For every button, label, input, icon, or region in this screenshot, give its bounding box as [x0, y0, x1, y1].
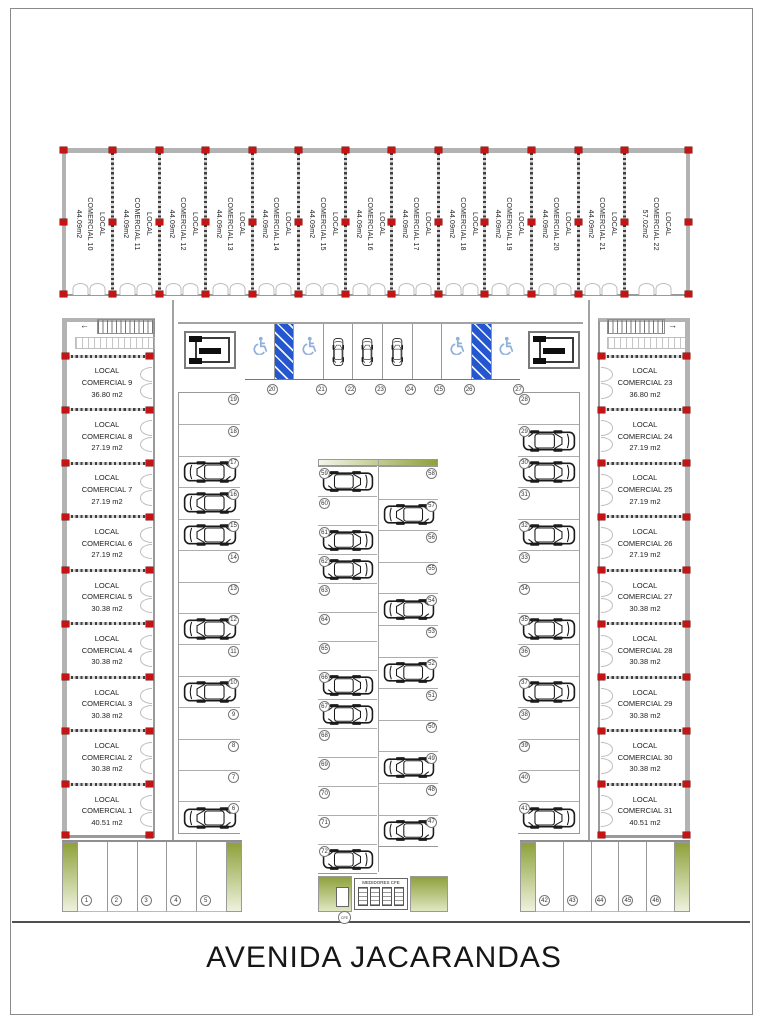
door-arc [140, 651, 152, 667]
stall-number: 69 [319, 759, 330, 770]
local-label: LOCALCOMERCIAL 2257.02m2 [637, 159, 673, 289]
local-area: 27.19 m2 [66, 496, 148, 508]
local-cell: LOCALCOMERCIAL 2930.38 m2 [604, 677, 686, 731]
door-swing [601, 795, 613, 827]
partition-wall [66, 462, 150, 465]
parking-stall: 10 [179, 676, 240, 707]
column-marker [295, 219, 302, 225]
local-area: 30.38 m2 [604, 603, 686, 615]
column-marker [62, 728, 69, 734]
parking-stall: 68 [318, 728, 377, 757]
column-marker [62, 407, 69, 413]
local-name: COMERCIAL 29 [604, 698, 686, 710]
parking-stall: 65 [318, 641, 377, 670]
stall-number: 52 [426, 659, 437, 670]
parking-stall: 34 [518, 582, 579, 613]
stall-number: 46 [650, 895, 661, 906]
door-arc [462, 283, 478, 295]
parking-stall: 52 [379, 657, 438, 689]
column-marker [683, 353, 690, 359]
door-arc [140, 688, 152, 704]
car-icon [353, 324, 382, 379]
local-cell: LOCALCOMERCIAL 2257.02m2 [625, 153, 686, 294]
street-edge-line [12, 921, 750, 923]
stall-number: 33 [519, 552, 530, 563]
local-name: LOCAL [189, 159, 201, 289]
column-marker [62, 567, 69, 573]
stall-number: 21 [316, 384, 327, 395]
parking-stall: 18 [179, 424, 240, 455]
corridor-wall [172, 300, 174, 840]
local-cell: LOCALCOMERCIAL 2730.38 m2 [604, 570, 686, 624]
door-swing [140, 367, 152, 399]
local-name: COMERCIAL 15 [317, 159, 329, 289]
door-swing [212, 283, 245, 295]
local-area: 30.38 m2 [66, 603, 148, 615]
stall-number: 55 [426, 564, 437, 575]
stall-number: 68 [319, 730, 330, 741]
door-swing [538, 283, 571, 295]
utility-badge: CFE [338, 911, 351, 924]
local-name: LOCAL [235, 159, 247, 289]
column-marker [146, 514, 153, 520]
door-arc [140, 742, 152, 758]
local-cell: LOCALCOMERCIAL 1944.09m2 [485, 153, 532, 294]
local-label: LOCALCOMERCIAL 1644.09m2 [351, 159, 387, 289]
local-name: COMERCIAL 13 [224, 159, 236, 289]
stall-number: 72 [319, 846, 330, 857]
door-swing [601, 474, 613, 506]
local-area: 30.38 m2 [604, 763, 686, 775]
door-arc [136, 283, 152, 295]
parking-stall: 6 [179, 801, 240, 832]
local-name: LOCAL [604, 526, 686, 538]
local-cell: LOCALCOMERCIAL 2044.09m2 [531, 153, 578, 294]
door-arc [166, 283, 182, 295]
local-area: 40.51 m2 [66, 817, 148, 829]
door-swing [306, 283, 339, 295]
local-cell: LOCALCOMERCIAL 727.19 m2 [66, 463, 148, 517]
planter [520, 842, 536, 912]
parking-stall: 35 [518, 613, 579, 644]
partition-wall [602, 355, 686, 358]
local-area: 44.09m2 [259, 159, 271, 289]
partition-wall [66, 515, 150, 518]
local-name: LOCAL [66, 740, 148, 752]
column-marker [435, 291, 442, 297]
local-cell: LOCALCOMERCIAL 3030.38 m2 [604, 731, 686, 785]
local-cell: LOCALCOMERCIAL 2427.19 m2 [604, 410, 686, 464]
local-cell: LOCALCOMERCIAL 1744.09m2 [392, 153, 439, 294]
local-area: 44.09m2 [398, 159, 410, 289]
meter-row [355, 886, 407, 907]
column-marker [62, 514, 69, 520]
door-arc [585, 283, 601, 295]
door-arc [601, 437, 613, 453]
local-name: LOCAL [375, 159, 387, 289]
local-label: LOCALCOMERCIAL 1744.09m2 [397, 159, 433, 289]
parking-column: 585756555453525150494847 [379, 466, 438, 847]
local-name: LOCAL [604, 633, 686, 645]
door-arc [229, 283, 245, 295]
door-arc [416, 283, 432, 295]
door-arc [259, 283, 275, 295]
column-marker [249, 147, 256, 153]
stall-number: 42 [539, 895, 550, 906]
door-swing [119, 283, 152, 295]
column-marker [342, 147, 349, 153]
door-arc [656, 283, 672, 295]
door-arc [306, 283, 322, 295]
local-name: LOCAL [66, 794, 148, 806]
column-marker [295, 147, 302, 153]
door-swing [601, 420, 613, 452]
parking-stall: 7 [179, 770, 240, 801]
stall-number: 62 [319, 556, 330, 567]
stall-number: 50 [426, 722, 437, 733]
parking-stall: 51 [379, 688, 438, 720]
local-name: LOCAL [142, 159, 154, 289]
door-arc [602, 283, 618, 295]
column-marker [575, 219, 582, 225]
local-cell: LOCALCOMERCIAL 140.51 m2 [66, 784, 148, 838]
parking-stall: 44 [591, 842, 619, 912]
parking-stall: 57 [379, 499, 438, 531]
local-name: COMERCIAL 11 [131, 159, 143, 289]
local-name: LOCAL [604, 580, 686, 592]
parking-stall: 64 [318, 612, 377, 641]
local-name: LOCAL [328, 159, 340, 289]
door-swing [166, 283, 199, 295]
local-area: 27.19 m2 [604, 442, 686, 454]
stall-number: 43 [567, 895, 578, 906]
local-area: 44.09m2 [352, 159, 364, 289]
street-name: AVENIDA JACARANDAS [14, 941, 754, 975]
stall-number: 20 [267, 384, 278, 395]
column-marker [683, 621, 690, 627]
stall-number: 60 [319, 498, 330, 509]
local-name: COMERCIAL 5 [66, 591, 148, 603]
column-marker [683, 407, 690, 413]
local-label: LOCALCOMERCIAL 1544.09m2 [304, 159, 340, 289]
local-label: LOCALCOMERCIAL 1044.09m2 [71, 159, 107, 289]
parking-stall: 36 [518, 644, 579, 675]
parking-column: 5960616263646566676869707172 [318, 466, 377, 874]
bottom-left-stall-row: 12345 [62, 840, 242, 912]
local-cell: LOCALCOMERCIAL 430.38 m2 [66, 624, 148, 678]
door-swing [140, 742, 152, 774]
door-arc [140, 758, 152, 774]
door-swing [601, 527, 613, 559]
door-arc [601, 705, 613, 721]
column-marker [249, 291, 256, 297]
local-area: 30.38 m2 [66, 763, 148, 775]
partition-wall [66, 569, 150, 572]
local-cell: LOCALCOMERCIAL 330.38 m2 [66, 677, 148, 731]
door-arc [140, 635, 152, 651]
column-marker [528, 147, 535, 153]
door-arc [212, 283, 228, 295]
stall-number: 70 [319, 788, 330, 799]
meter [370, 887, 380, 906]
column-marker [146, 407, 153, 413]
local-area: 27.19 m2 [66, 549, 148, 561]
local-area: 44.09m2 [73, 159, 85, 289]
stall-number: 71 [319, 817, 330, 828]
column-marker [435, 147, 442, 153]
stall-number: 8 [228, 741, 239, 752]
door-arc [140, 490, 152, 506]
parking-stall: 40 [518, 770, 579, 801]
parking-stall: 16 [179, 487, 240, 518]
column-marker [62, 621, 69, 627]
door-arc [369, 283, 385, 295]
local-name: LOCAL [604, 365, 686, 377]
column-marker [598, 621, 605, 627]
stall-number: 4 [170, 895, 181, 906]
partition-wall [602, 783, 686, 786]
handicap-access-aisle [471, 324, 491, 379]
door-arc [601, 527, 613, 543]
meter [358, 887, 368, 906]
stall-number: 63 [319, 585, 330, 596]
local-label: LOCALCOMERCIAL 1844.09m2 [444, 159, 480, 289]
local-area: 27.19 m2 [66, 442, 148, 454]
stall-number: 28 [519, 394, 530, 405]
stairs [97, 319, 155, 334]
stall-number: 37 [519, 678, 530, 689]
column-marker [683, 674, 690, 680]
door-swing [639, 283, 672, 295]
column-marker [295, 291, 302, 297]
column-marker [146, 728, 153, 734]
door-arc [639, 283, 655, 295]
local-name: COMERCIAL 31 [604, 805, 686, 817]
partition-wall [66, 622, 150, 625]
column-marker [62, 832, 69, 838]
parking-stall: 31 [518, 487, 579, 518]
column-marker [621, 147, 628, 153]
local-name: COMERCIAL 18 [457, 159, 469, 289]
local-label: LOCALCOMERCIAL 2144.09m2 [583, 159, 619, 289]
stall-number: 30 [519, 458, 530, 469]
utility-cabinet [336, 887, 349, 907]
parking-stall: 24 [382, 324, 412, 379]
local-area: 30.38 m2 [66, 656, 148, 668]
column-marker [598, 567, 605, 573]
local-name: COMERCIAL 4 [66, 645, 148, 657]
column-marker [683, 567, 690, 573]
stall-number: 5 [200, 895, 211, 906]
parking-stall: 54 [379, 593, 438, 625]
plan-canvas: LOCALCOMERCIAL 1044.09m2LOCALCOMERCIAL 1… [0, 0, 763, 1024]
local-name: COMERCIAL 26 [604, 538, 686, 550]
local-name: COMERCIAL 8 [66, 431, 148, 443]
local-name: COMERCIAL 10 [84, 159, 96, 289]
floor-plan-sheet: LOCALCOMERCIAL 1044.09m2LOCALCOMERCIAL 1… [0, 0, 763, 1024]
parking-stall: 22 [323, 324, 353, 379]
parking-stall: 32 [518, 519, 579, 550]
local-cell: LOCALCOMERCIAL 1544.09m2 [299, 153, 346, 294]
door-swing [399, 283, 432, 295]
local-label: LOCALCOMERCIAL 1144.09m2 [118, 159, 154, 289]
parking-stall: 53 [379, 625, 438, 657]
door-arc [601, 581, 613, 597]
local-cell: LOCALCOMERCIAL 1144.09m2 [113, 153, 160, 294]
door-arc [140, 437, 152, 453]
column-marker [62, 674, 69, 680]
local-label: LOCALCOMERCIAL 1244.09m2 [164, 159, 200, 289]
stall-number: 13 [228, 584, 239, 595]
stall-number: 57 [426, 501, 437, 512]
column-marker [342, 291, 349, 297]
door-swing [601, 635, 613, 667]
parking-stall: 29 [518, 424, 579, 455]
local-name: COMERCIAL 22 [650, 159, 662, 289]
stall-number: 25 [434, 384, 445, 395]
parking-stall: 30 [518, 456, 579, 487]
door-arc [492, 283, 508, 295]
column-marker [528, 291, 535, 297]
stairs-landing [75, 337, 155, 349]
door-arc [555, 283, 571, 295]
door-swing [140, 795, 152, 827]
stall-number: 53 [426, 627, 437, 638]
column-marker [683, 514, 690, 520]
partition-wall [66, 783, 150, 786]
column-marker [202, 291, 209, 297]
door-arc [140, 812, 152, 828]
stall-number: 18 [228, 426, 239, 437]
parking-stall: 39 [518, 739, 579, 770]
parking-stall: 19 [179, 393, 240, 424]
stall-number: 17 [228, 458, 239, 469]
stall-number: 47 [426, 817, 437, 828]
meter [382, 887, 392, 906]
column-marker [575, 147, 582, 153]
wheelchair-icon [492, 324, 521, 367]
door-arc [399, 283, 415, 295]
door-arc [601, 635, 613, 651]
local-name: LOCAL [561, 159, 573, 289]
local-cell: LOCALCOMERCIAL 2527.19 m2 [604, 463, 686, 517]
door-arc [538, 283, 554, 295]
elevator-door-mark [189, 336, 202, 342]
local-cell: LOCALCOMERCIAL 627.19 m2 [66, 517, 148, 571]
local-cell: LOCALCOMERCIAL 827.19 m2 [66, 410, 148, 464]
elevator-counterweight [543, 348, 565, 354]
parking-stall: 17 [179, 456, 240, 487]
stall-number: 65 [319, 643, 330, 654]
handicap-access-aisle [274, 324, 294, 379]
stall-number: 19 [228, 394, 239, 405]
column-marker [598, 674, 605, 680]
parking-stall: 1 [78, 842, 107, 912]
column-marker [146, 832, 153, 838]
stall-number: 38 [519, 709, 530, 720]
stall-number: 66 [319, 672, 330, 683]
local-label: LOCALCOMERCIAL 2044.09m2 [537, 159, 573, 289]
wheelchair-icon [245, 324, 274, 367]
door-arc [601, 420, 613, 436]
local-name: LOCAL [66, 633, 148, 645]
local-label: LOCALCOMERCIAL 1444.09m2 [257, 159, 293, 289]
column-marker [388, 291, 395, 297]
column-marker [598, 353, 605, 359]
wheelchair-icon [294, 324, 323, 367]
door-arc [140, 383, 152, 399]
column-marker [146, 460, 153, 466]
column-marker [621, 219, 628, 225]
partition-wall [602, 622, 686, 625]
local-name: COMERCIAL 25 [604, 484, 686, 496]
local-name: COMERCIAL 3 [66, 698, 148, 710]
column-marker [109, 147, 116, 153]
door-arc [140, 544, 152, 560]
local-name: LOCAL [604, 687, 686, 699]
parking-stall: 48 [379, 783, 438, 815]
door-arc [601, 367, 613, 383]
utility-area: MEDIDORES CFECFE [318, 874, 448, 918]
local-name: LOCAL [282, 159, 294, 289]
parking-stall: 27 [491, 324, 521, 379]
door-arc [352, 283, 368, 295]
door-arc [140, 705, 152, 721]
parking-stall: 43 [563, 842, 591, 912]
local-name: COMERCIAL 24 [604, 431, 686, 443]
parking-stall: 15 [179, 519, 240, 550]
stall-number: 11 [228, 646, 239, 657]
door-arc [601, 598, 613, 614]
door-arc [140, 367, 152, 383]
stall-number: 45 [622, 895, 633, 906]
stall-number: 9 [228, 709, 239, 720]
parking-stall: 42 [536, 842, 563, 912]
column-marker [598, 832, 605, 838]
column-marker [598, 514, 605, 520]
column-marker [481, 219, 488, 225]
local-area: 44.09m2 [166, 159, 178, 289]
local-name: LOCAL [66, 365, 148, 377]
local-area: 57.02m2 [639, 159, 651, 289]
column-marker [598, 407, 605, 413]
local-cell: LOCALCOMERCIAL 2830.38 m2 [604, 624, 686, 678]
parking-stall: 37 [518, 676, 579, 707]
parking-stall: 50 [379, 720, 438, 752]
parking-stall: 13 [179, 582, 240, 613]
column-marker [249, 219, 256, 225]
parking-stall: 49 [379, 751, 438, 783]
elevator-door-mark [189, 358, 202, 364]
stall-number: 29 [519, 426, 530, 437]
local-name: LOCAL [468, 159, 480, 289]
stall-number: 44 [595, 895, 606, 906]
stairs-direction-arrow: → [668, 321, 677, 330]
stairs-landing [607, 337, 687, 349]
parking-stall: 71 [318, 815, 377, 844]
local-name: COMERCIAL 16 [363, 159, 375, 289]
parking-stall: 8 [179, 739, 240, 770]
stall-number: 58 [426, 468, 437, 479]
door-arc [601, 383, 613, 399]
local-name: COMERCIAL 12 [177, 159, 189, 289]
door-swing [140, 420, 152, 452]
door-arc [119, 283, 135, 295]
column-marker [146, 674, 153, 680]
local-label: LOCALCOMERCIAL 1344.09m2 [211, 159, 247, 289]
column-marker [60, 291, 67, 297]
column-marker [598, 460, 605, 466]
